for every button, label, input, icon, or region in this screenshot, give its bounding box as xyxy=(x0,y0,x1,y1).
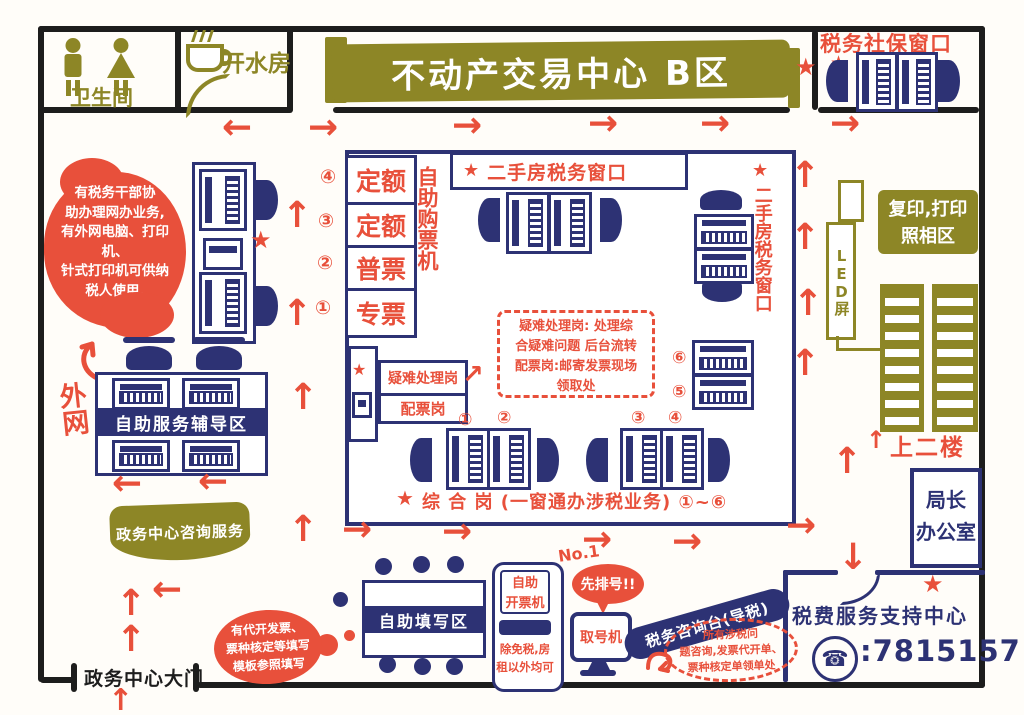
red-dot-icon xyxy=(344,630,355,641)
stool-dot-icon xyxy=(379,656,396,673)
workstation-icon xyxy=(620,428,664,490)
arrow-up-icon xyxy=(790,158,820,194)
support-center-label: 税费服务支持中心 xyxy=(792,600,968,629)
arrow-right-icon xyxy=(786,508,816,544)
invoice-machine-note: 除免税,房 租以外均可 xyxy=(494,640,556,677)
arrow-up-icon xyxy=(288,380,318,416)
workstation-icon xyxy=(694,248,754,284)
stool-dot-icon xyxy=(333,592,348,607)
support-room-wall-top2 xyxy=(875,570,985,575)
workstation-icon xyxy=(199,272,247,334)
gate-label: 政务中心大门 xyxy=(84,664,204,691)
workstation-icon xyxy=(896,52,938,112)
arrow-right-icon xyxy=(830,106,860,142)
workstation-icon xyxy=(487,428,531,490)
arrow-up-icon xyxy=(793,286,823,322)
wall-restroom-divider xyxy=(175,28,181,110)
arrow-right-icon xyxy=(442,514,472,550)
chair-icon xyxy=(586,438,608,482)
arrow-up-icon xyxy=(790,346,820,382)
workstation-icon xyxy=(856,52,898,112)
number-machine-stand xyxy=(588,658,610,670)
consult-ribbon: 政务中心咨询服务 xyxy=(109,502,251,563)
stool-dot-icon xyxy=(446,658,463,675)
wall-left xyxy=(38,26,44,682)
arrow-right-icon xyxy=(342,512,372,548)
arrow-up-right-icon xyxy=(462,362,484,388)
stool-dot-icon xyxy=(375,558,392,575)
ticket-machine-label: 定额 xyxy=(356,162,406,198)
invoice-machine-slot xyxy=(499,620,551,635)
arrow-up-icon xyxy=(866,428,886,452)
number-machine-label: 取号机 xyxy=(580,627,622,647)
chair-icon xyxy=(938,60,960,102)
ticket-machine-label: 普票 xyxy=(356,250,406,286)
floorplan-canvas: 卫生间 开水房 不动产交易中心 B区 税务社保窗口 有税务干部协 助办理网办业务… xyxy=(0,0,1024,715)
hot-water-label: 开水房 xyxy=(222,44,291,78)
desk-num-3: ③ xyxy=(631,408,645,428)
chair-icon xyxy=(702,282,742,302)
printer-icon xyxy=(352,392,372,418)
desk-num-6: ⑥ xyxy=(672,348,686,368)
star-icon xyxy=(352,362,366,378)
difficult-post-label: 疑难处理岗 xyxy=(388,368,458,388)
star-icon xyxy=(463,162,479,180)
ticket-machine-3: 定额 xyxy=(345,202,417,248)
consult-ribbon-label: 政务中心咨询服务 xyxy=(116,519,245,544)
extranet-label: 外网 xyxy=(49,380,93,438)
stool-dot-icon xyxy=(447,556,464,573)
ticket-machine-4: 定额 xyxy=(345,155,417,205)
stool-icon xyxy=(196,346,242,370)
chair-icon xyxy=(478,198,500,242)
ticket-machine-1: 专票 xyxy=(345,288,417,338)
star-icon xyxy=(795,55,817,79)
arrow-up-icon xyxy=(288,512,318,548)
upstairs-label: 上二楼 xyxy=(890,428,965,462)
workstation-icon xyxy=(506,192,550,254)
restroom-label: 卫生间 xyxy=(70,82,133,112)
wall-right xyxy=(979,26,985,688)
star-icon xyxy=(752,162,768,180)
number-machine-screen: 取号机 xyxy=(570,612,632,662)
gate-post-left xyxy=(71,663,77,692)
arrow-up-icon xyxy=(282,296,312,332)
chair-icon xyxy=(537,438,559,482)
support-phone: :7815157 xyxy=(860,634,1021,668)
ticket-machine-label: 专票 xyxy=(356,295,406,331)
page-title: 不动产交易中心 B区 xyxy=(391,45,731,98)
workstation-icon xyxy=(692,374,754,410)
teacup-icon xyxy=(186,44,224,72)
machine-num-2: ② xyxy=(317,252,333,274)
arrow-right-icon xyxy=(672,524,702,560)
desk-num-4: ④ xyxy=(668,408,682,428)
support-room-wall-top1 xyxy=(783,570,838,575)
dashed-note-box: 疑难处理岗: 处理综 合疑难问题 后台流转 配票岗:邮寄发票现场 领取处 xyxy=(497,310,655,398)
desk-num-5: ⑤ xyxy=(672,382,686,402)
stool-dot-icon xyxy=(414,658,431,675)
workstation-icon xyxy=(182,378,240,410)
chair-icon xyxy=(256,180,278,220)
led-screen-label: LED屏 xyxy=(834,247,849,316)
director-office-room: 局长 办公室 xyxy=(910,468,982,568)
workstation-icon xyxy=(199,169,247,231)
chair-icon xyxy=(826,60,848,102)
shelf-icon xyxy=(880,284,924,432)
arrow-right-icon xyxy=(308,110,338,146)
ticket-machine-label: 定额 xyxy=(356,207,406,243)
arrow-left-icon xyxy=(198,464,228,500)
star-icon xyxy=(922,572,944,596)
queue-bubble: 先排号!! xyxy=(572,564,644,604)
difficult-post-box: 疑难处理岗 xyxy=(378,360,468,396)
ticket-machine-side-label: 自助购票机 xyxy=(416,166,437,326)
template-note-bubble: 有代开发票、 票种核定等填写 模板参照填写 xyxy=(212,607,324,687)
arrow-up-icon xyxy=(282,198,312,234)
guidance-zone-label: 自助服务辅导区 xyxy=(115,410,248,435)
shelf-icon xyxy=(932,284,978,432)
machine-num-4: ④ xyxy=(320,166,336,188)
workstation-icon xyxy=(694,214,754,250)
chair-icon xyxy=(256,286,278,326)
machine-num-1: ① xyxy=(315,297,331,319)
star-icon xyxy=(250,228,272,252)
arrow-left-icon xyxy=(152,572,182,608)
arrow-up-icon xyxy=(108,686,133,715)
workstation-icon xyxy=(548,192,592,254)
printer-icon xyxy=(203,238,243,270)
no1-label: No.1 xyxy=(557,541,601,566)
title-banner: 不动产交易中心 B区 xyxy=(332,40,791,103)
stool-dot-icon xyxy=(413,556,430,573)
workstation-icon xyxy=(692,340,754,376)
arrow-down-icon xyxy=(838,540,868,576)
ticket-post-box: 配票岗 xyxy=(378,393,468,424)
chair-icon xyxy=(708,438,730,482)
secondhand-window-label-box: 二手房税务窗口 xyxy=(450,152,688,190)
led-screen-box: LED屏 xyxy=(826,222,856,340)
star-icon xyxy=(396,488,414,508)
led-pole-box xyxy=(838,180,864,222)
arrow-right-icon xyxy=(588,106,618,142)
chair-icon xyxy=(600,198,622,242)
queue-bubble-label: 先排号!! xyxy=(581,574,636,594)
fill-area-band: 自助填写区 xyxy=(362,606,486,633)
helper-note-bubble: 有税务干部协 助办理网办业务, 有外网电脑、打印机、 针式打印机可供纳 税人使用… xyxy=(44,172,186,328)
ticket-post-label: 配票岗 xyxy=(400,398,445,419)
arrow-up-icon xyxy=(116,586,146,622)
arrow-left-icon xyxy=(112,466,142,502)
number-machine-base xyxy=(580,670,616,676)
copy-print-area-box: 复印,打印 照相区 xyxy=(878,190,978,254)
fill-area-label: 自助填写区 xyxy=(379,608,469,632)
guidance-zone-band: 自助服务辅导区 xyxy=(95,408,268,436)
desk-num-2: ② xyxy=(497,408,511,428)
workstation-icon xyxy=(660,428,704,490)
ticket-machine-2: 普票 xyxy=(345,245,417,291)
secondhand-window-right-label: 二手房税务窗口 xyxy=(752,186,772,336)
workstation-icon xyxy=(446,428,490,490)
machine-num-3: ③ xyxy=(318,210,334,232)
arrow-left-icon xyxy=(222,110,252,146)
chair-icon xyxy=(410,438,432,482)
workstation-icon xyxy=(112,378,170,410)
arrow-right-icon xyxy=(700,106,730,142)
chair-icon xyxy=(700,190,742,210)
arrow-up-icon xyxy=(790,220,820,256)
secondhand-window-label: 二手房税务窗口 xyxy=(487,158,627,185)
led-connector xyxy=(836,336,883,351)
arrow-right-icon xyxy=(452,108,482,144)
helper-note-text: 有税务干部协 助办理网办业务, 有外网电脑、打印机、 针式打印机可供纳 税人使用… xyxy=(48,184,182,301)
desk-num-1: ① xyxy=(458,410,472,430)
wall-bottom xyxy=(197,682,985,688)
arrow-up-icon xyxy=(116,622,146,658)
stool-icon xyxy=(126,346,172,370)
arrow-up-icon xyxy=(832,444,862,480)
phone-icon: ☎ xyxy=(812,636,858,682)
invoice-machine-label-box: 自助 开票机 xyxy=(500,570,550,614)
